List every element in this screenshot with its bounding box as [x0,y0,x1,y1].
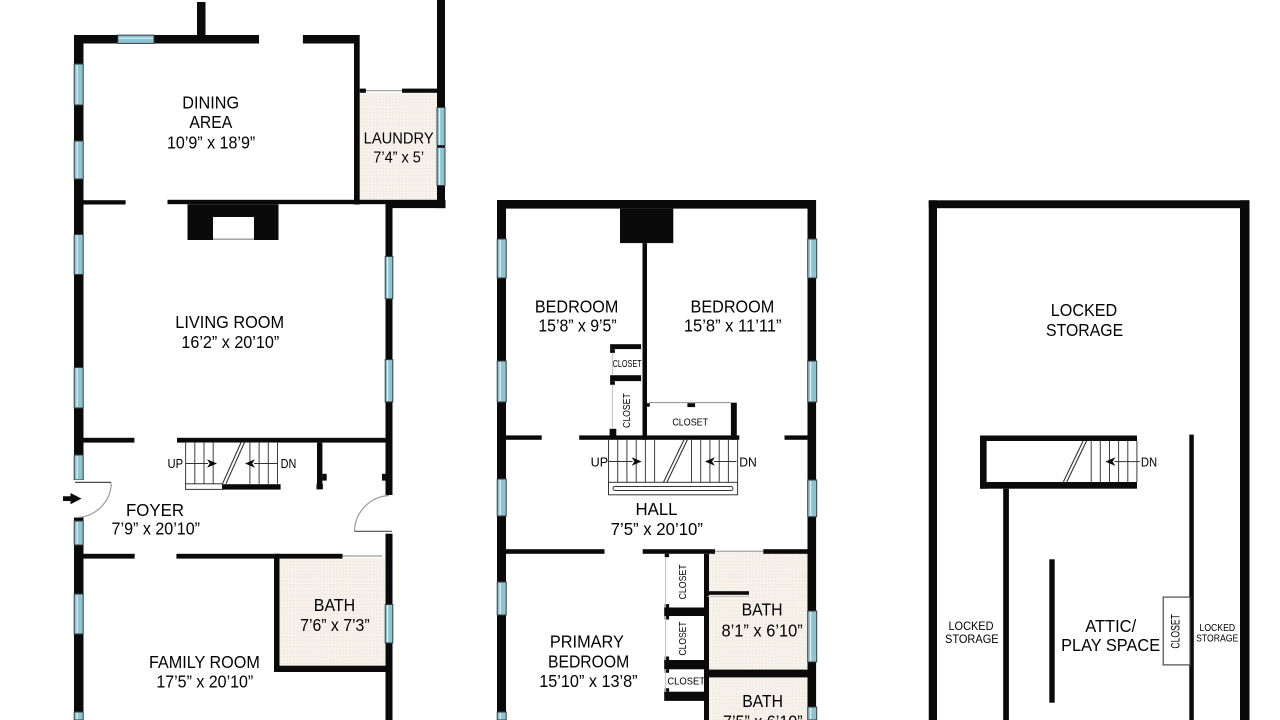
svg-text:BEDROOM: BEDROOM [548,651,629,671]
svg-text:BEDROOM: BEDROOM [691,296,775,316]
svg-text:STORAGE: STORAGE [1196,633,1239,644]
svg-text:LAUNDRY: LAUNDRY [364,131,434,148]
svg-text:8’1” x 6’10”: 8’1” x 6’10” [722,620,803,640]
svg-text:CLOSET: CLOSET [678,564,689,599]
svg-text:BEDROOM: BEDROOM [535,296,619,316]
svg-text:LOCKED: LOCKED [1051,300,1118,320]
svg-text:PLAY SPACE: PLAY SPACE [1061,635,1160,655]
svg-text:7’4” x 5’: 7’4” x 5’ [373,150,424,167]
svg-text:7’5” x 6’10”: 7’5” x 6’10” [723,712,803,720]
svg-text:HALL: HALL [636,499,678,519]
svg-text:CLOSET: CLOSET [672,418,708,429]
svg-text:STORAGE: STORAGE [1046,320,1123,340]
svg-text:BATH: BATH [314,595,355,615]
svg-text:7’9” x 20’10”: 7’9” x 20’10” [112,518,201,538]
svg-text:LOCKED: LOCKED [948,619,993,633]
svg-text:15’8” x 9’5”: 15’8” x 9’5” [538,316,617,336]
svg-text:DN: DN [739,456,757,470]
svg-text:ATTIC/: ATTIC/ [1085,616,1136,636]
svg-text:10’9” x 18’9”: 10’9” x 18’9” [167,133,255,153]
svg-text:LIVING ROOM: LIVING ROOM [175,312,284,332]
svg-text:PRIMARY: PRIMARY [550,631,624,651]
svg-text:DN: DN [1141,455,1157,469]
svg-text:CLOSET: CLOSET [667,676,705,687]
svg-text:STORAGE: STORAGE [945,632,999,646]
svg-text:7’6” x 7’3”: 7’6” x 7’3” [300,615,370,635]
svg-text:DINING: DINING [182,92,239,112]
svg-text:FOYER: FOYER [126,500,184,520]
svg-text:BATH: BATH [742,691,783,711]
svg-text:UP: UP [591,456,609,470]
svg-text:15’10” x 13’8”: 15’10” x 13’8” [539,671,638,691]
svg-text:CLOSET: CLOSET [678,621,689,655]
svg-text:CLOSET: CLOSET [622,393,633,428]
svg-text:7’5” x 20’10”: 7’5” x 20’10” [611,519,704,539]
svg-text:UP: UP [168,457,184,471]
svg-text:AREA: AREA [189,112,232,132]
svg-text:DN: DN [281,457,297,471]
svg-text:BATH: BATH [742,599,783,619]
svg-text:17’5” x 20’10”: 17’5” x 20’10” [156,672,253,692]
svg-text:16’2” x 20’10”: 16’2” x 20’10” [181,332,279,352]
svg-text:FAMILY ROOM: FAMILY ROOM [149,652,260,672]
svg-text:CLOSET: CLOSET [613,359,642,370]
svg-text:15’8” x 11’11”: 15’8” x 11’11” [684,316,782,336]
svg-text:CLOSET: CLOSET [1170,614,1182,649]
